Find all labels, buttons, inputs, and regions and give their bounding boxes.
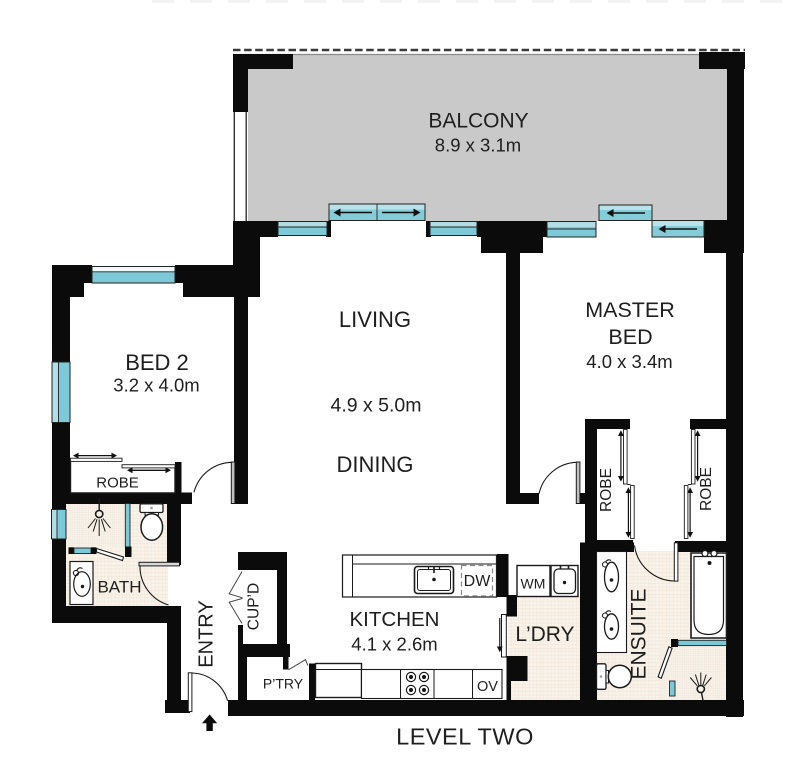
svg-text:P’TRY: P’TRY xyxy=(263,676,304,692)
svg-text:DW: DW xyxy=(464,573,492,590)
svg-text:3.2 x 4.0m: 3.2 x 4.0m xyxy=(113,375,199,396)
svg-text:KITCHEN: KITCHEN xyxy=(350,608,440,631)
svg-text:4.0 x 3.4m: 4.0 x 3.4m xyxy=(586,351,672,372)
svg-text:DINING: DINING xyxy=(337,452,414,477)
svg-text:ROBE: ROBE xyxy=(96,475,139,492)
svg-text:ENSUITE: ENSUITE xyxy=(628,588,651,679)
svg-text:OV: OV xyxy=(477,679,498,695)
svg-text:BED: BED xyxy=(608,325,652,349)
svg-text:4.1 x 2.6m: 4.1 x 2.6m xyxy=(351,634,437,655)
svg-text:WM: WM xyxy=(521,576,546,592)
svg-text:BATH: BATH xyxy=(97,578,141,597)
svg-text:ROBE: ROBE xyxy=(698,467,715,511)
svg-text:CUP’D: CUP’D xyxy=(246,583,263,630)
svg-text:L’DRY: L’DRY xyxy=(515,623,574,646)
svg-text:MASTER: MASTER xyxy=(585,298,675,322)
svg-text:BED 2: BED 2 xyxy=(125,350,189,375)
svg-text:8.9 x 3.1m: 8.9 x 3.1m xyxy=(435,135,521,156)
svg-text:4.9 x 5.0m: 4.9 x 5.0m xyxy=(330,395,421,417)
svg-text:BALCONY: BALCONY xyxy=(428,110,528,133)
svg-text:ENTRY: ENTRY xyxy=(196,600,218,667)
svg-text:ROBE: ROBE xyxy=(598,468,615,512)
svg-text:LEVEL TWO: LEVEL TWO xyxy=(396,724,534,750)
svg-text:LIVING: LIVING xyxy=(339,307,411,332)
